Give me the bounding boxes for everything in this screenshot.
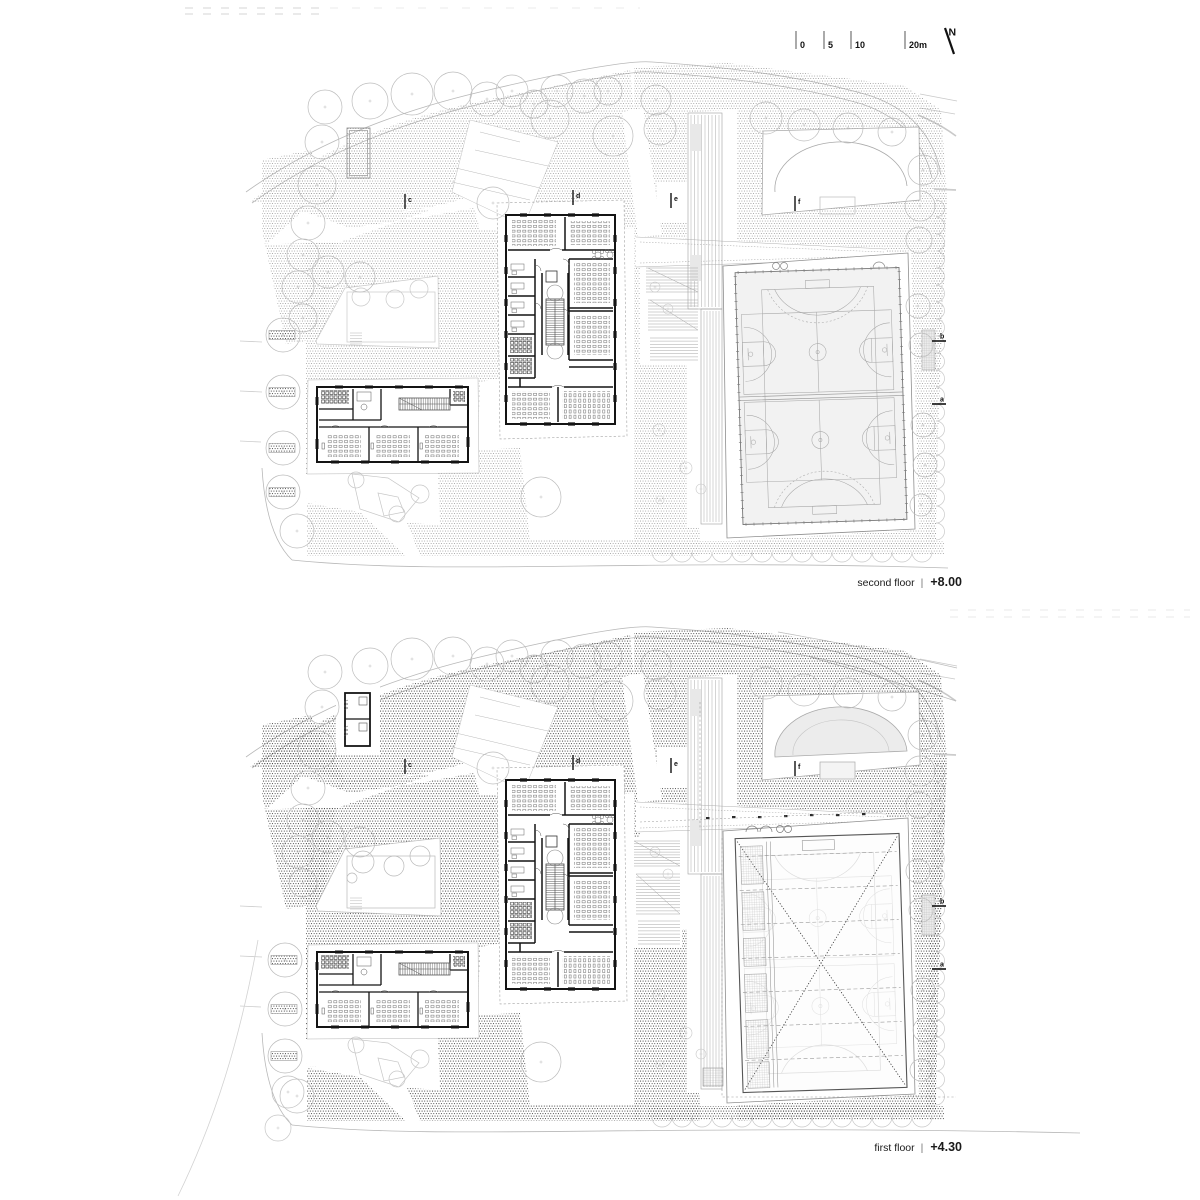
svg-text:d: d [576, 193, 580, 200]
svg-text:5: 5 [828, 40, 833, 50]
svg-text:e: e [674, 761, 678, 768]
svg-text:b: b [940, 899, 944, 906]
svg-text:c: c [408, 197, 412, 204]
svg-text:10: 10 [855, 40, 865, 50]
svg-text:b: b [940, 334, 944, 341]
svg-text:N: N [949, 27, 957, 39]
svg-text:c: c [408, 762, 412, 769]
svg-text:a: a [940, 962, 944, 969]
svg-text:e: e [674, 196, 678, 203]
svg-text:a: a [940, 397, 944, 404]
svg-text:d: d [576, 758, 580, 765]
svg-text:20m: 20m [909, 40, 927, 50]
svg-text:second floor|+8.00: second floor|+8.00 [857, 575, 962, 589]
svg-text:0: 0 [800, 40, 805, 50]
